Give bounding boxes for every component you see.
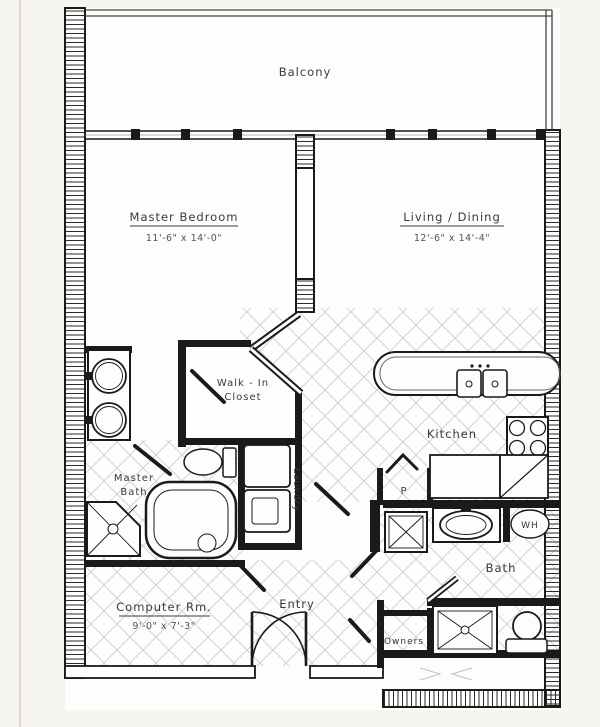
master-toilet-icon [184, 448, 236, 477]
garden-tub-icon [146, 482, 236, 558]
wall-center-divider [296, 135, 314, 312]
living-dining-dims: 12'-6" x 14'-4" [414, 233, 490, 244]
hall-vanity-icon [433, 506, 500, 542]
wall-bath-west [377, 600, 384, 668]
stove-icon [507, 417, 548, 458]
wall-laundry-south [238, 543, 302, 550]
wall-pantry-west [377, 468, 383, 505]
bath-label: Bath [486, 561, 517, 575]
owners-label: Owners [384, 637, 424, 647]
balcony-label: Balcony [279, 65, 332, 79]
living-dining-label: Living / Dining [403, 210, 501, 224]
wall-bottom-bath [383, 690, 560, 707]
master-bedroom-label: Master Bedroom [130, 210, 239, 224]
wall-wh-niche [503, 508, 510, 542]
double-vanity-icon [86, 350, 130, 440]
wall-left [65, 8, 85, 678]
wall-closet-west [178, 340, 186, 447]
kitchen-label: Kitchen [427, 427, 477, 441]
computer-room-label: Computer Rm. [116, 600, 212, 614]
entry-label: Entry [279, 597, 315, 611]
dryer-icon [244, 490, 290, 532]
master-shower-icon [87, 502, 140, 556]
washer-icon [244, 445, 290, 487]
wall-hallbath-west [370, 500, 380, 552]
wall-hallbath-north [383, 500, 560, 508]
water-heater-label: WH [521, 521, 539, 531]
master-bedroom-dims: 11'-6" x 14'-0" [146, 233, 222, 244]
computer-room-dims: 9'-0" x 7'-3" [132, 621, 195, 632]
refrigerator-icon [430, 455, 548, 498]
lower-shower-icon [433, 606, 497, 654]
pantry-label: P [400, 486, 407, 497]
hall-shower-icon [385, 512, 427, 552]
bath-threshold [383, 658, 560, 690]
laundry-label: Laundry [291, 468, 301, 512]
floor-plan-page: Balcony Master Bedroom 11'-6" x 14'-0" L… [0, 0, 600, 727]
wall-owners-north [383, 610, 428, 616]
wall-bottom-center [310, 666, 383, 678]
wall-masterbath-south [85, 560, 245, 567]
wall-lowerbath-north [427, 598, 560, 606]
wall-bottom-left [65, 666, 255, 678]
floor-plan-drawing: Balcony Master Bedroom 11'-6" x 14'-0" L… [0, 0, 600, 727]
wall-closet-north [186, 340, 251, 347]
